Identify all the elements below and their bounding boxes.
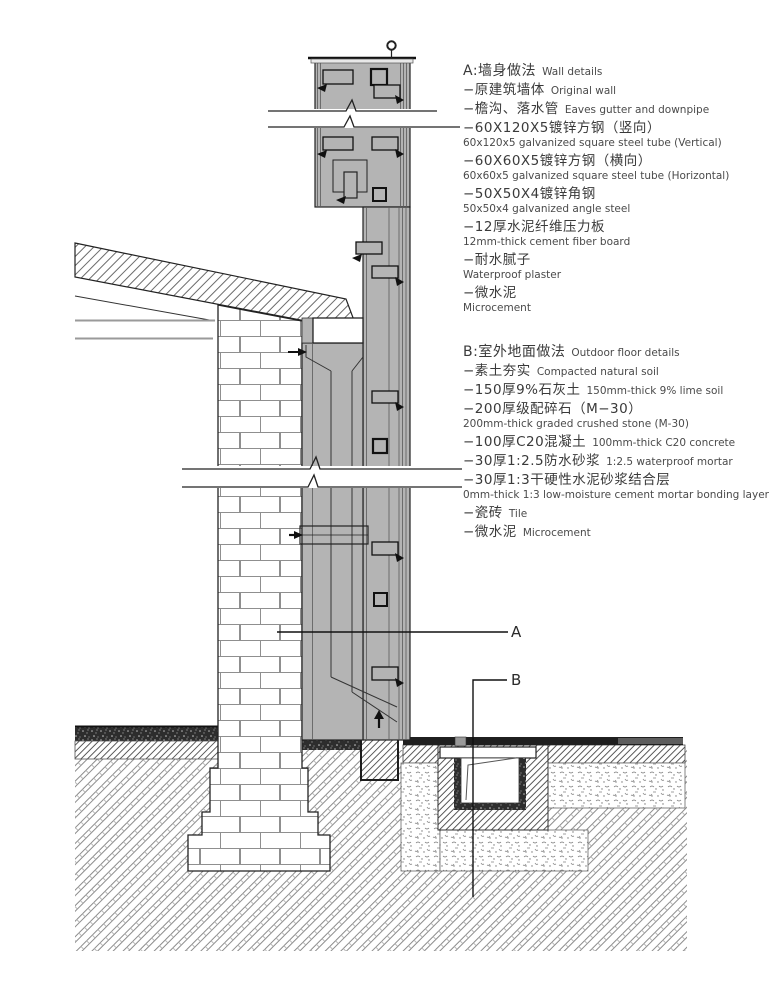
annotation-text-en: 60x60x5 galvanized square steel tube (Ho… [463,171,779,182]
annotation-text-zh: −微水泥 [463,525,517,540]
annotation-line: −200厚级配碎石（M−30） [463,402,779,417]
finish-strip [302,318,313,343]
left-gravel-band [75,727,218,741]
annotation-list-b: −素土夯实Compacted natural soil−150厚9%石灰土150… [463,364,779,540]
finial-ball [387,41,395,49]
steel-wall-assembly [288,41,416,740]
annotation-line: −檐沟、落水管Eaves gutter and downpipe [463,102,779,117]
annotation-line: −微水泥Microcement [463,525,779,540]
annotation-line: −60X120X5镀锌方钢（竖向） [463,121,779,136]
ground-layers [75,727,687,952]
annotation-line: −100厚C20混凝土100mm-thick C20 concrete [463,435,779,450]
annotation-text-en: Waterproof plaster [463,270,779,281]
heading-a-zh: A:墙身做法 [463,64,536,79]
annotation-text-en: 0mm-thick 1:3 low-moisture cement mortar… [463,490,779,501]
wall-lower-block [302,343,363,740]
square-tube-section [374,593,387,606]
annotation-text-en: Original wall [551,85,616,97]
heading-b-en: Outdoor floor details [571,347,679,359]
annotation-line: −30厚1:3干硬性水泥砂浆结合层 [463,473,779,488]
annotation-text-zh: −60X60X5镀锌方钢（横向） [463,154,652,169]
section-marker-b: B [511,671,521,689]
annotation-line: −30厚1:2.5防水砂浆1:2.5 waterproof mortar [463,454,779,469]
drain-cover [440,747,536,758]
annotation-text-zh: −檐沟、落水管 [463,102,559,117]
annotation-text-en: Compacted natural soil [537,366,659,378]
drain-inlet-slot [455,737,466,746]
crushed-stone-left [401,763,440,871]
annotation-line: −瓷砖Tile [463,506,779,521]
annotation-list-a: −原建筑墙体Original wall−檐沟、落水管Eaves gutter a… [463,83,779,314]
annotation-text-zh: −50X50X4镀锌角钢 [463,187,596,202]
annotation-text-en: Microcement [523,527,591,539]
crushed-stone-bottom [440,830,588,871]
annotation-block-wall: A:墙身做法 Wall details −原建筑墙体Original wall−… [463,64,779,319]
annotation-line: −原建筑墙体Original wall [463,83,779,98]
annotation-text-en: 50x50x4 galvanized angle steel [463,204,779,215]
construction-detail-sheet: A B A:墙身做法 Wall details −原建筑墙体Original w… [0,0,780,986]
annotation-text-zh: −原建筑墙体 [463,83,545,98]
annotation-heading-a: A:墙身做法 Wall details [463,64,779,79]
annotation-text-en: 200mm-thick graded crushed stone (M-30) [463,419,779,430]
annotation-text-en: Tile [509,508,527,520]
annotation-line: −60X60X5镀锌方钢（横向） [463,154,779,169]
annotation-text-zh: −素土夯实 [463,364,531,379]
annotation-text-en: 60x120x5 galvanized square steel tube (V… [463,138,779,149]
annotation-line: −耐水腻子 [463,253,779,268]
annotation-text-en: Microcement [463,303,779,314]
annotation-text-zh: −微水泥 [463,286,517,301]
left-lime-soil-band [75,741,218,759]
annotation-line: −微水泥 [463,286,779,301]
annotation-text-zh: −150厚9%石灰土 [463,383,581,398]
annotation-text-en: 150mm-thick 9% lime soil [587,385,724,397]
section-marker-a: A [511,623,521,641]
annotation-text-zh: −耐水腻子 [463,253,531,268]
annotation-text-zh: −30厚1:2.5防水砂浆 [463,454,600,469]
heading-b-zh: B:室外地面做法 [463,345,565,360]
cap-flashing [311,59,413,63]
square-tube-section [373,439,387,453]
annotation-text-en: 100mm-thick C20 concrete [592,437,735,449]
trench-drain [438,745,548,830]
annotation-line: −素土夯实Compacted natural soil [463,364,779,379]
annotation-block-floor: B:室外地面做法 Outdoor floor details −素土夯实Comp… [463,345,779,544]
annotation-text-en: 1:2.5 waterproof mortar [606,456,733,468]
annotation-text-zh: −12厚水泥纤维压力板 [463,220,605,235]
annotation-text-zh: −200厚级配碎石（M−30） [463,402,642,417]
tile-band-light [618,738,683,744]
square-tube-section [371,69,387,85]
annotation-line: −150厚9%石灰土150mm-thick 9% lime soil [463,383,779,398]
annotation-text-en: Eaves gutter and downpipe [565,104,709,116]
annotation-text-zh: −瓷砖 [463,506,503,521]
crushed-stone-right [548,763,685,808]
annotation-text-en: 12mm-thick cement fiber board [463,237,779,248]
annotation-text-zh: −30厚1:3干硬性水泥砂浆结合层 [463,473,670,488]
annotation-text-zh: −60X120X5镀锌方钢（竖向） [463,121,661,136]
annotation-text-zh: −100厚C20混凝土 [463,435,586,450]
square-tube-section [373,188,386,201]
heading-a-en: Wall details [542,66,602,78]
annotation-line: −12厚水泥纤维压力板 [463,220,779,235]
annotation-line: −50X50X4镀锌角钢 [463,187,779,202]
annotation-heading-b: B:室外地面做法 Outdoor floor details [463,345,779,360]
eaves-gutter-opening [313,318,363,343]
